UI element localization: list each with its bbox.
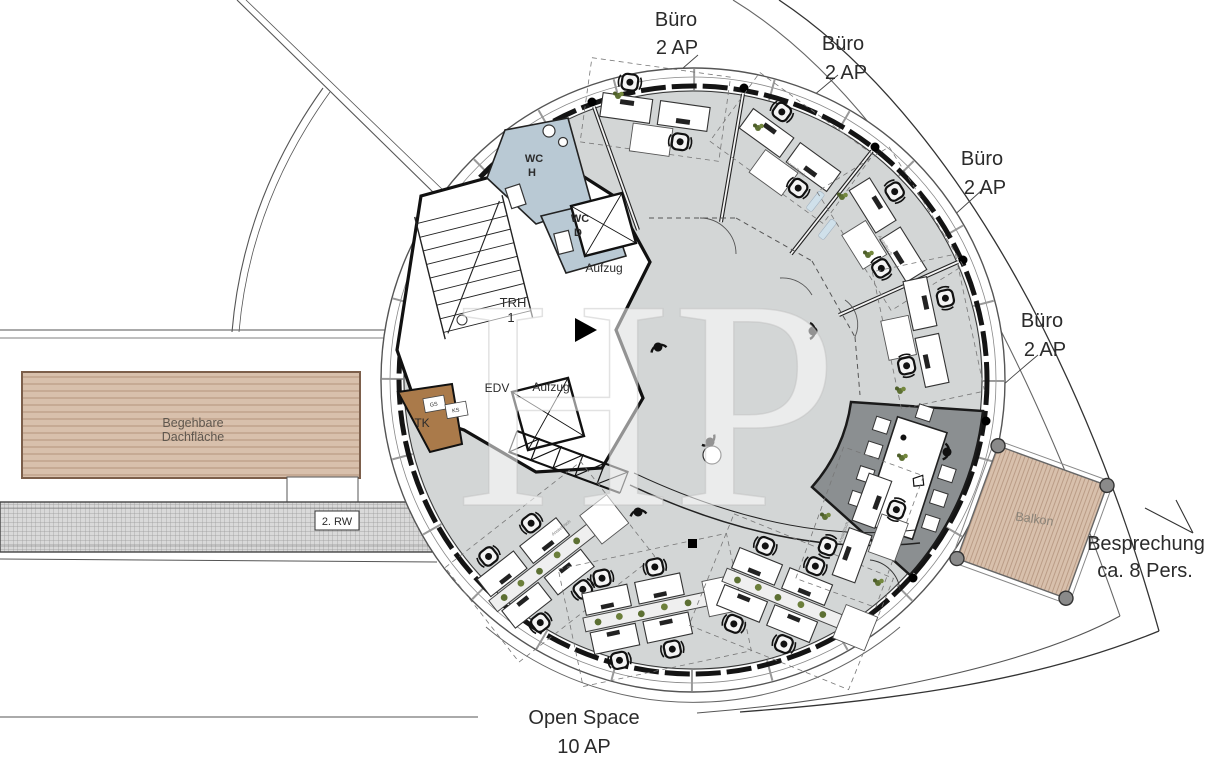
stairwell-label-1: TRH [500, 295, 527, 310]
office-label-2-name: Büro [822, 33, 864, 55]
office-label-4-cap: 2 AP [1024, 339, 1066, 361]
office-label-2-cap: 2 AP [825, 62, 867, 84]
tk-room-label: TK [414, 416, 429, 430]
office-label-3-cap: 2 AP [964, 177, 1006, 199]
elevator-2-label: Aufzug [532, 380, 569, 394]
elevator-1-label: Aufzug [585, 261, 622, 275]
open-space-label-1: Open Space [528, 707, 639, 729]
meeting-room-label-1: Besprechung [1087, 533, 1205, 555]
svg-text:HP: HP [455, 238, 839, 570]
meeting-room-label-2: ca. 8 Pers. [1097, 560, 1193, 582]
roof-terrace-label-2: Dachfläche [162, 430, 225, 444]
office-label-1-cap: 2 AP [656, 37, 698, 59]
floor-plan-drawing: HP Büro 2 AP Büro 2 AP Büro 2 AP Büro 2 … [0, 0, 1209, 768]
escape-route-band [0, 477, 432, 552]
open-space-label-2: 10 AP [557, 736, 610, 758]
floor-plan-page: HP Büro 2 AP Büro 2 AP Büro 2 AP Büro 2 … [0, 0, 1209, 768]
escape-route-label: 2. RW [322, 516, 353, 528]
office-label-1-name: Büro [655, 9, 697, 31]
roof-terrace-label-1: Begehbare [162, 416, 223, 430]
stairwell-label-2: 1 [507, 310, 514, 325]
it-room-label: EDV [485, 381, 510, 395]
wc-men-label-2: H [528, 167, 536, 179]
wc-women-label-1: WC [571, 213, 589, 225]
office-label-4-name: Büro [1021, 310, 1063, 332]
office-label-3-name: Büro [961, 148, 1003, 170]
logo-watermark: HP [455, 238, 839, 570]
wc-women-label-2: D [574, 227, 582, 239]
wc-men-label-1: WC [525, 153, 543, 165]
